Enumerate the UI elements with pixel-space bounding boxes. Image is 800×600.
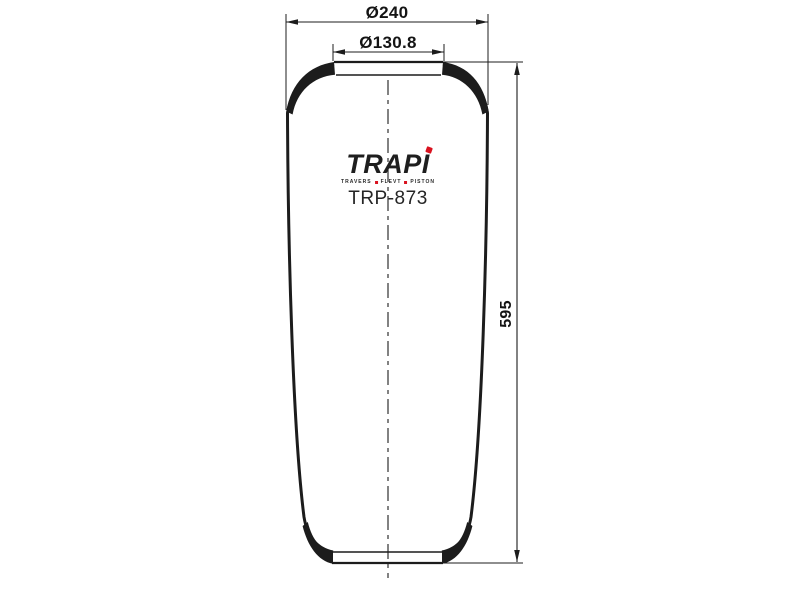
arrow-left-outer [286,19,298,25]
extension-lines [286,14,523,563]
overall-height-label: 595 [498,300,516,328]
top-diameter-label: Ø130.8 [359,33,417,53]
arrow-right-outer [476,19,488,25]
shoulder-fill-right [442,62,489,115]
brand-tagline: TRAVERS FLEVT PISTON [341,179,435,185]
tagline-word-2: FLEVT [381,179,402,185]
brand-logo: TRAPI [346,151,430,178]
arrow-left-top [333,49,345,55]
tagline-word-1: TRAVERS [341,179,372,185]
body-outline-left [288,64,335,552]
tagline-word-3: PISTON [410,179,435,185]
tagline-separator-icon [404,181,407,184]
air-spring-drawing [0,0,800,600]
arrow-up-height [514,63,520,75]
tagline-separator-icon [375,181,378,184]
arrow-right-top [432,49,444,55]
outer-diameter-label: Ø240 [366,3,409,23]
technical-drawing-canvas: Ø240 Ø130.8 595 TRAPI TRAVERS FLEVT PIST… [0,0,800,600]
part-number-label: TRP-873 [348,188,428,210]
body-outline-right [442,64,488,552]
brand-block: TRAPI TRAVERS FLEVT PISTON TRP-873 [341,151,435,210]
brand-logo-text: TRAPI [346,149,430,179]
arrow-down-height [514,550,520,562]
shoulder-fill-left [286,62,335,115]
